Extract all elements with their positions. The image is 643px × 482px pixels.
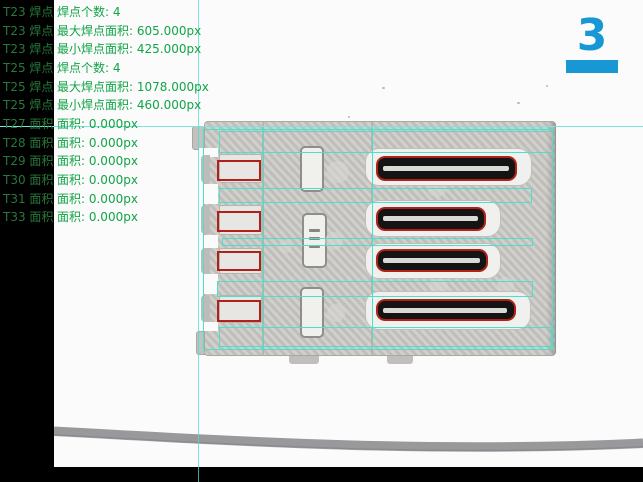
defect-box-pad-4 (217, 300, 261, 322)
station-number-indicator: 3 (566, 14, 618, 73)
result-row-value: 最大焊点面积: 1078.000px (57, 78, 209, 95)
roi-strip-4 (219, 327, 552, 347)
result-row: T31 面积面积: 0.000px (3, 189, 283, 208)
result-row: T23 焊点最大焊点面积: 605.000px (3, 21, 283, 40)
measurement-results-panel: T23 焊点焊点个数: 4 T23 焊点最大焊点面积: 605.000px T2… (3, 2, 283, 226)
cable-edge-curve (54, 418, 643, 470)
result-row: T25 焊点焊点个数: 4 (3, 58, 283, 77)
result-row-tag: T31 面积 (3, 190, 57, 207)
result-row-tag: T28 面积 (3, 134, 57, 151)
result-row-tag: T30 面积 (3, 171, 57, 188)
vision-inspection-screen: T23 焊点焊点个数: 4 T23 焊点最大焊点面积: 605.000px T2… (0, 0, 643, 482)
result-row-tag: T23 焊点 (3, 40, 57, 57)
result-row: T28 面积面积: 0.000px (3, 133, 283, 152)
result-row-value: 焊点个数: 4 (57, 3, 121, 20)
dust-speck (517, 102, 520, 104)
result-row: T33 面积面积: 0.000px (3, 208, 283, 227)
dust-speck (348, 116, 350, 118)
result-row-value: 最小焊点面积: 425.000px (57, 40, 201, 57)
result-row-value: 面积: 0.000px (57, 152, 138, 169)
station-number: 3 (566, 14, 618, 58)
result-row-tag: T23 焊点 (3, 3, 57, 20)
result-row: T30 面积面积: 0.000px (3, 170, 283, 189)
result-row: T23 焊点焊点个数: 4 (3, 2, 283, 21)
station-underline (566, 60, 618, 73)
dust-speck (382, 87, 385, 89)
result-row-tag: T25 焊点 (3, 96, 57, 113)
result-row-value: 面积: 0.000px (57, 208, 138, 225)
result-row-value: 最小焊点面积: 460.000px (57, 96, 201, 113)
result-row: T25 焊点最小焊点面积: 460.000px (3, 95, 283, 114)
result-row: T29 面积面积: 0.000px (3, 152, 283, 171)
result-row-tag: T25 焊点 (3, 59, 57, 76)
roi-divider-right (372, 129, 373, 341)
result-row-value: 面积: 0.000px (57, 190, 138, 207)
roi-strip-3 (217, 281, 533, 297)
result-row-tag: T33 面积 (3, 208, 57, 225)
result-row-tag: T25 焊点 (3, 78, 57, 95)
result-row: T27 面积面积: 0.000px (3, 114, 283, 133)
bottom-tab (387, 356, 413, 364)
dust-speck (546, 85, 548, 87)
roi-strip-2 (222, 238, 533, 246)
result-row-tag: T27 面积 (3, 115, 57, 132)
result-row: T25 焊点最大焊点面积: 1078.000px (3, 77, 283, 96)
result-row-value: 焊点个数: 4 (57, 59, 121, 76)
result-row-value: 面积: 0.000px (57, 115, 138, 132)
result-row-tag: T29 面积 (3, 152, 57, 169)
result-row-value: 面积: 0.000px (57, 171, 138, 188)
defect-box-pad-3 (217, 251, 261, 271)
result-row-value: 面积: 0.000px (57, 134, 138, 151)
result-row: T23 焊点最小焊点面积: 425.000px (3, 39, 283, 58)
result-row-tag: T23 焊点 (3, 22, 57, 39)
result-row-value: 最大焊点面积: 605.000px (57, 22, 201, 39)
bottom-tab (289, 356, 319, 364)
